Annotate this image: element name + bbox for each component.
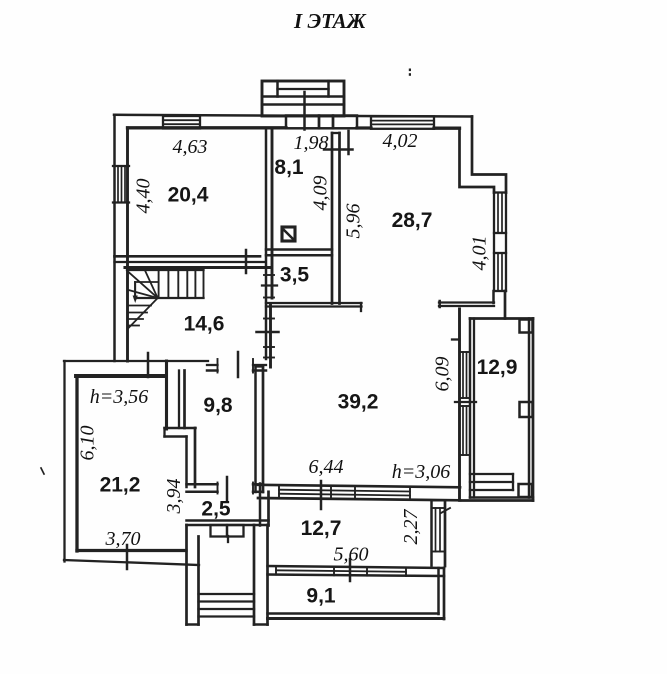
svg-text:6,09: 6,09 xyxy=(432,357,454,392)
svg-text:12,7: 12,7 xyxy=(301,517,342,540)
svg-text:4,63: 4,63 xyxy=(173,136,208,158)
svg-text:12,9: 12,9 xyxy=(477,356,518,379)
svg-text:9,1: 9,1 xyxy=(306,585,336,608)
svg-text:3,94: 3,94 xyxy=(163,479,185,515)
svg-text:9,8: 9,8 xyxy=(203,394,233,417)
svg-text:4,02: 4,02 xyxy=(383,130,418,152)
svg-text:I ЭТАЖ: I ЭТАЖ xyxy=(293,9,367,33)
svg-text:4,09: 4,09 xyxy=(310,176,332,211)
svg-text:5,60: 5,60 xyxy=(334,544,369,566)
svg-text:8,1: 8,1 xyxy=(274,156,304,179)
svg-text:h=3,06: h=3,06 xyxy=(392,461,451,483)
svg-text:3,70: 3,70 xyxy=(105,528,141,550)
svg-text:4,40: 4,40 xyxy=(133,179,155,214)
svg-text:21,2: 21,2 xyxy=(100,474,141,497)
svg-text:h=3,56: h=3,56 xyxy=(90,386,149,408)
svg-text:39,2: 39,2 xyxy=(338,391,379,414)
svg-text:4,01: 4,01 xyxy=(469,236,491,271)
svg-text:6,10: 6,10 xyxy=(77,426,99,461)
svg-text:2,5: 2,5 xyxy=(201,498,231,521)
svg-text:14,6: 14,6 xyxy=(184,313,225,336)
svg-text:5,96: 5,96 xyxy=(343,204,365,239)
svg-text:3,5: 3,5 xyxy=(280,264,310,287)
svg-text:2,27: 2,27 xyxy=(400,509,422,545)
svg-text:6,44: 6,44 xyxy=(309,456,344,478)
svg-text:28,7: 28,7 xyxy=(392,209,433,232)
svg-text:20,4: 20,4 xyxy=(168,184,209,207)
svg-text:1,98: 1,98 xyxy=(294,132,329,154)
